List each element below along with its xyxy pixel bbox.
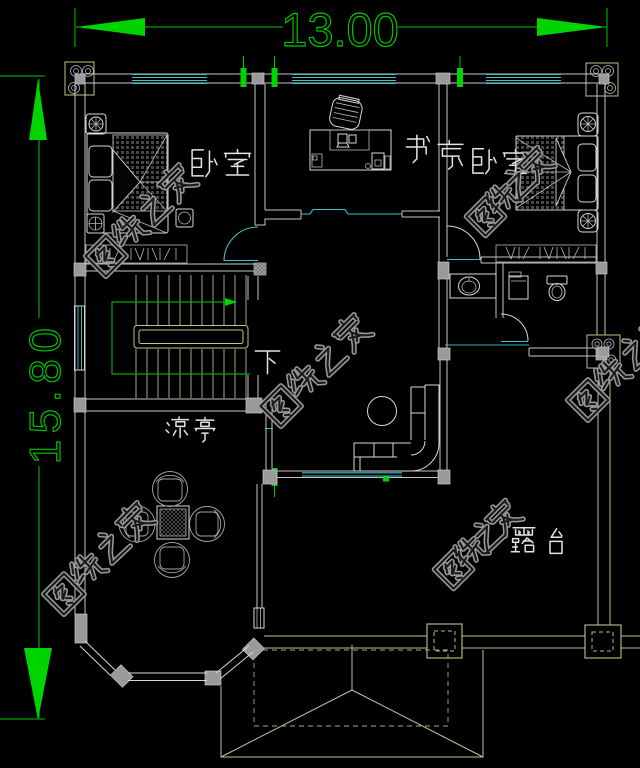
- svg-text:13.00: 13.00: [281, 3, 399, 56]
- svg-text:15.80: 15.80: [21, 322, 70, 465]
